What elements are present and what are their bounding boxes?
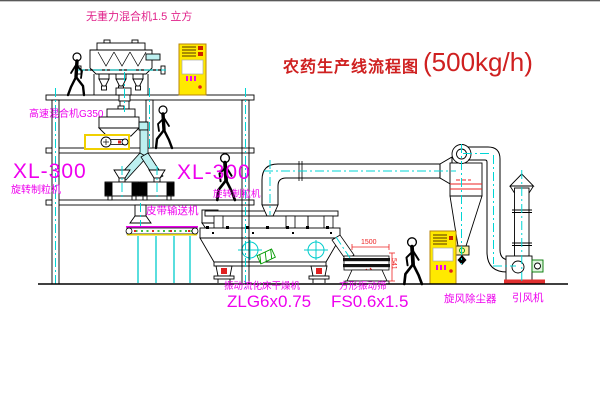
control-cabinet-right	[430, 231, 456, 284]
label-granulator-left-name: 旋转制粒机	[11, 186, 61, 196]
diagram-title: 农药生产线流程图 (500kg/h)	[283, 47, 533, 78]
control-cabinet-top	[179, 44, 206, 95]
induced-draft-fan	[504, 256, 545, 284]
label-cyclone: 旋风除尘器	[444, 294, 497, 305]
label-dryer-model: ZLG6x0.75	[227, 293, 311, 310]
label-granulator-left-model: XL-300	[13, 161, 87, 182]
label-gravity-free-mixer: 无重力混合机1.5 立方	[86, 12, 192, 23]
fluid-bed-dryer	[200, 205, 340, 283]
dimension-screen-height: 541	[390, 258, 397, 270]
title-text: 农药生产线流程图	[283, 47, 419, 77]
label-screen-model: FS0.6x1.5	[331, 293, 409, 310]
label-belt-conveyor: 皮带输送机	[146, 206, 199, 217]
label-fan: 引风机	[512, 293, 544, 304]
label-high-speed-mixer: 高速混合机G350	[29, 110, 103, 120]
person-ground	[404, 238, 422, 284]
label-dryer-name: 振动流化床干燥机	[224, 282, 300, 292]
flow-diagram-page: 农药生产线流程图 (500kg/h) 无重力混合机1.5 立方 高速混合机G35…	[0, 0, 600, 403]
person-top-floor	[68, 53, 84, 95]
label-granulator-right-model: XL-300	[177, 162, 251, 183]
dimension-screen-length: 1500	[361, 239, 377, 246]
title-capacity: (500kg/h)	[423, 47, 533, 78]
exhaust-riser-duct	[262, 157, 452, 205]
belt-conveyor	[126, 226, 198, 283]
label-screen-name: 方形振动筛	[339, 282, 387, 292]
label-granulator-right-name: 旋转制粒机	[213, 190, 261, 200]
gravity-free-mixer	[77, 40, 165, 95]
person-second-floor	[156, 106, 172, 148]
